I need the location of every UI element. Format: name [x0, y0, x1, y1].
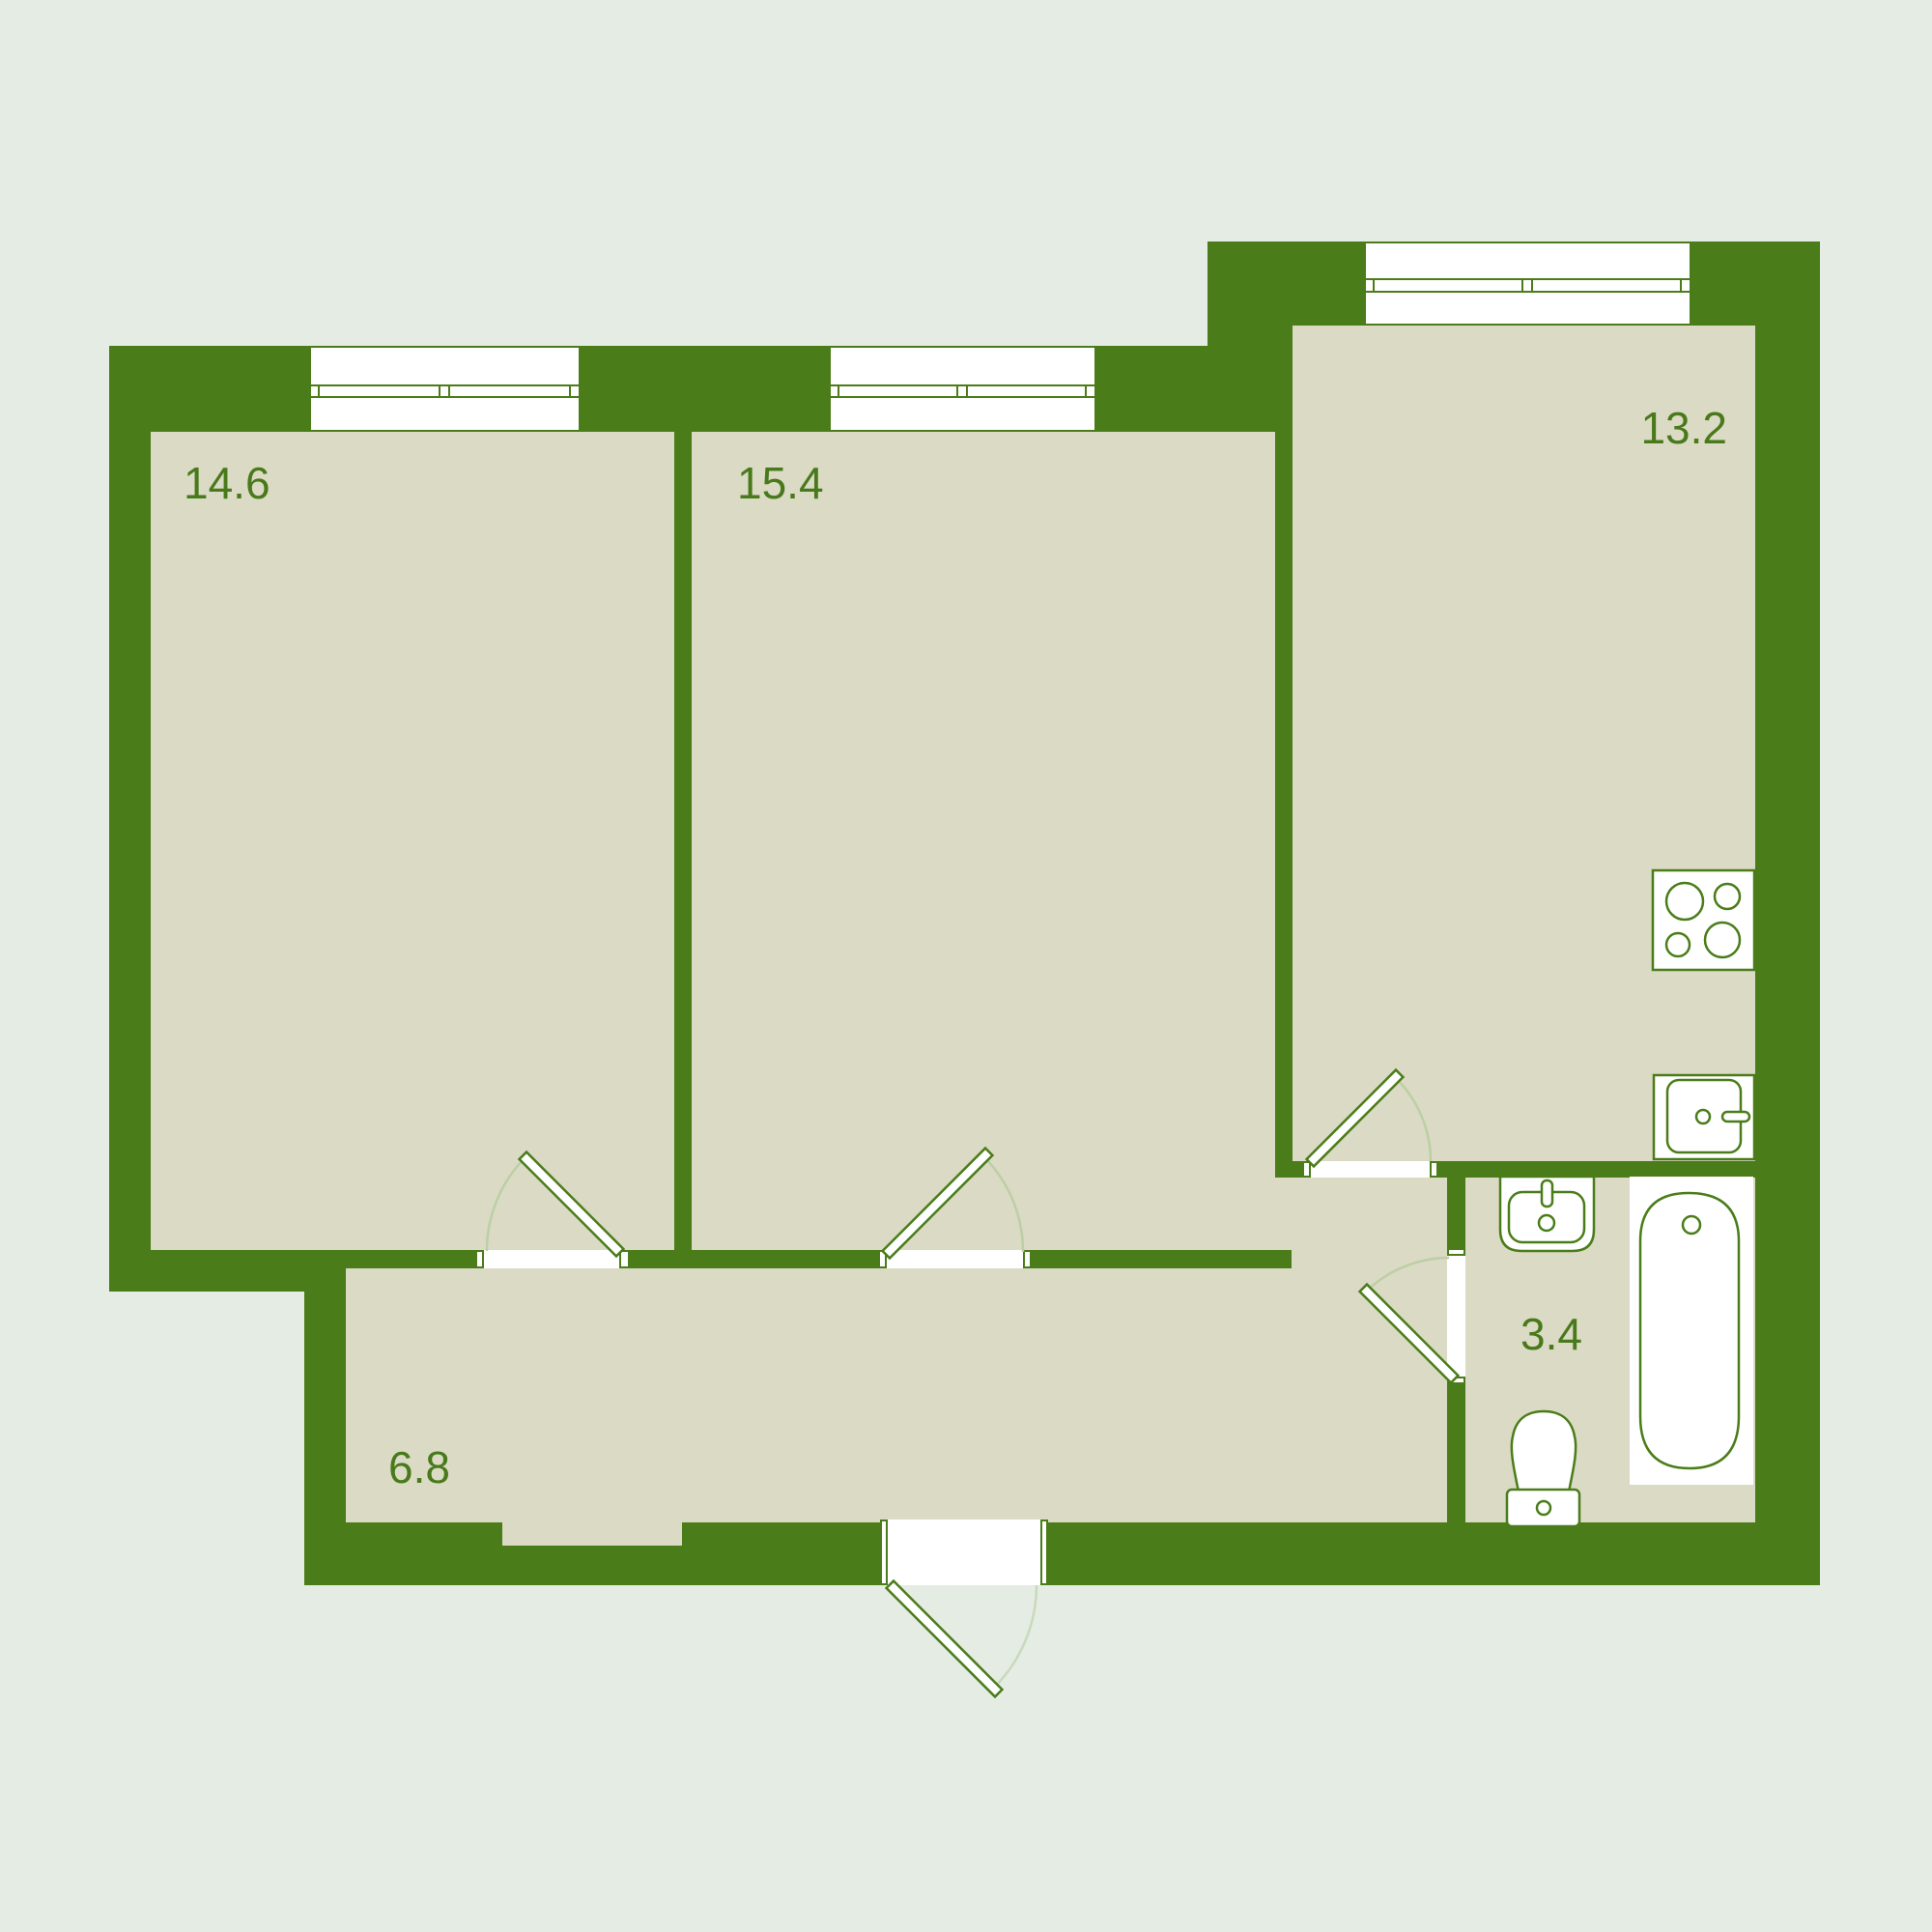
- door-jamb: [1040, 1520, 1048, 1585]
- room-label-kitchen: 13.2: [1640, 404, 1727, 453]
- room-label-bedroom-middle: 15.4: [737, 459, 824, 508]
- room-bedroom-middle: [692, 432, 1275, 1250]
- room-hallway-notch: [502, 1522, 682, 1546]
- window-bedroom-left: [311, 346, 579, 432]
- door-jamb: [1302, 1161, 1311, 1178]
- room-label-hallway: 6.8: [388, 1443, 450, 1492]
- room-bathroom: [1465, 1178, 1755, 1522]
- room-hallway-nook-lower: [1292, 1250, 1447, 1268]
- door-jamb: [1447, 1377, 1465, 1384]
- room-label-bathroom: 3.4: [1520, 1310, 1582, 1359]
- door-entrance: [894, 1585, 1037, 1690]
- window-kitchen: [1366, 241, 1690, 326]
- door-jamb: [880, 1520, 888, 1585]
- door-opening-bathroom: [1447, 1256, 1465, 1377]
- room-hallway-main: [346, 1268, 1447, 1522]
- door-opening-bedroom-left: [484, 1250, 619, 1268]
- door-opening-entrance: [880, 1520, 1048, 1585]
- door-jamb: [1447, 1248, 1465, 1256]
- room-label-bedroom-left: 14.6: [184, 459, 270, 508]
- room-hallway-nook-upper: [1275, 1178, 1447, 1250]
- door-jamb: [1430, 1161, 1438, 1178]
- door-jamb: [619, 1250, 630, 1268]
- window-bedroom-middle: [831, 346, 1094, 432]
- door-opening-bedroom-middle: [887, 1250, 1023, 1268]
- door-jamb: [475, 1250, 484, 1268]
- door-jamb: [1023, 1250, 1032, 1268]
- door-opening-kitchen: [1311, 1161, 1430, 1178]
- room-bedroom-left: [151, 432, 674, 1250]
- floor-plan: 14.6 15.4 13.2 6.8 3.4: [0, 0, 1932, 1932]
- door-jamb: [878, 1250, 887, 1268]
